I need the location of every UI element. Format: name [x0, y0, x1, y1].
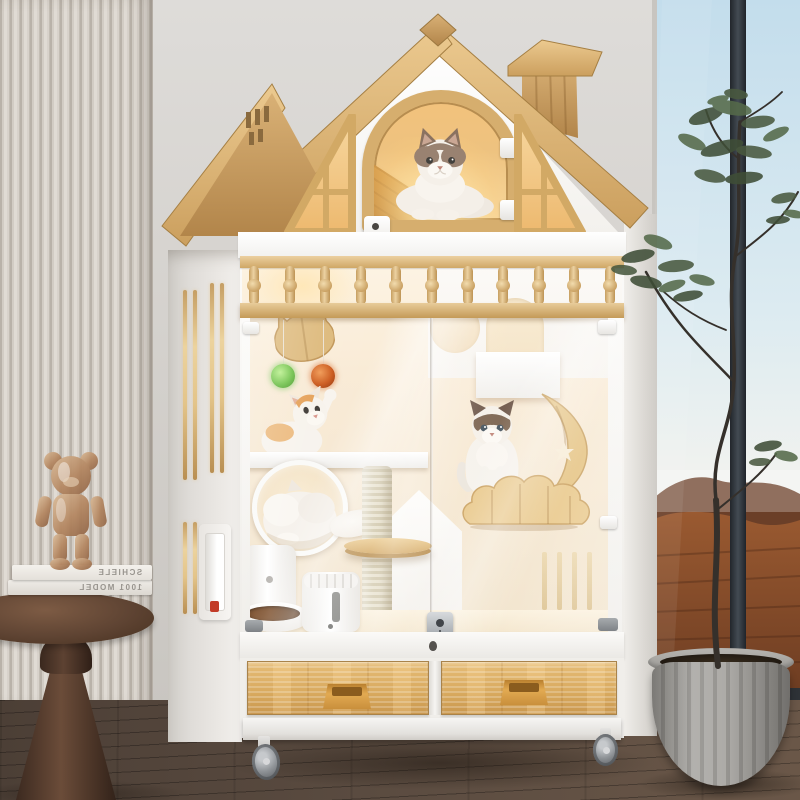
tree-foliage — [611, 87, 800, 466]
vent-slot — [193, 290, 197, 480]
door-seam — [430, 318, 433, 632]
vent-slot — [183, 290, 187, 480]
vent-slot — [210, 283, 214, 473]
vent-slot — [193, 522, 197, 614]
vent-slot — [183, 522, 187, 614]
baluster — [356, 266, 366, 305]
baluster — [391, 266, 401, 305]
room-scene: 1001 MODEL SCHIELE — [0, 0, 800, 800]
baluster — [498, 266, 508, 305]
book-title: 1001 MODEL — [78, 583, 142, 592]
drawer-handle-left — [323, 684, 371, 709]
caster-wheel-right — [593, 734, 618, 766]
glass-bear-figurine — [34, 448, 108, 574]
cat-in-attic — [382, 124, 502, 220]
indoor-tree — [560, 30, 800, 680]
house-floor-shadow — [225, 736, 655, 790]
vent-slot — [220, 283, 224, 473]
baluster — [249, 266, 259, 305]
baluster — [534, 266, 544, 305]
triangle-window-left — [282, 114, 356, 234]
baluster — [285, 266, 295, 305]
flap-lock-indicator — [210, 601, 219, 612]
baluster — [427, 266, 437, 305]
villa-side-panel — [168, 250, 242, 742]
base-plinth — [243, 718, 621, 740]
baluster — [320, 266, 330, 305]
door-hinge-bottom — [245, 620, 263, 632]
book-1001-model: 1001 MODEL — [8, 580, 152, 595]
cat-flap-panel — [205, 533, 225, 611]
door-hinge — [243, 322, 259, 334]
keyhole — [429, 641, 437, 651]
drawer-divider — [429, 661, 441, 715]
baluster — [463, 266, 473, 305]
drawer-handle-right — [500, 680, 548, 705]
